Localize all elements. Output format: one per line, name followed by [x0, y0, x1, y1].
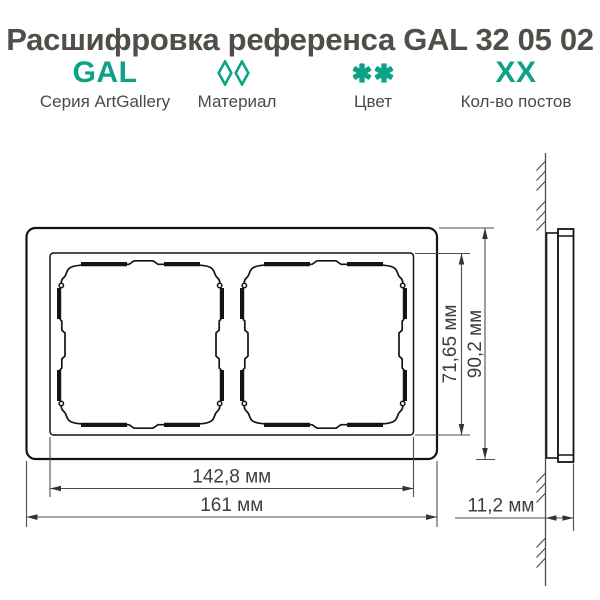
inner-height-value: 71,65 мм	[440, 305, 461, 384]
profile-front-plate	[558, 229, 574, 462]
inner-width-value: 142,8 мм	[192, 467, 271, 488]
front-view	[27, 228, 438, 459]
dimension-depth: 11,2 мм	[455, 464, 574, 532]
depth-value: 11,2 мм	[468, 496, 535, 517]
outer-height-value: 90,2 мм	[465, 310, 486, 378]
side-view	[537, 153, 574, 586]
technical-drawing: 71,65 мм 90,2 мм 142,8 мм 161 мм	[0, 0, 600, 600]
outer-width-value: 161 мм	[200, 495, 263, 516]
wall-hatching	[537, 161, 546, 568]
profile-back-plate	[547, 233, 559, 458]
reference-decoding-infographic: Расшифровка референса GAL 32 05 02 GAL С…	[0, 0, 600, 600]
